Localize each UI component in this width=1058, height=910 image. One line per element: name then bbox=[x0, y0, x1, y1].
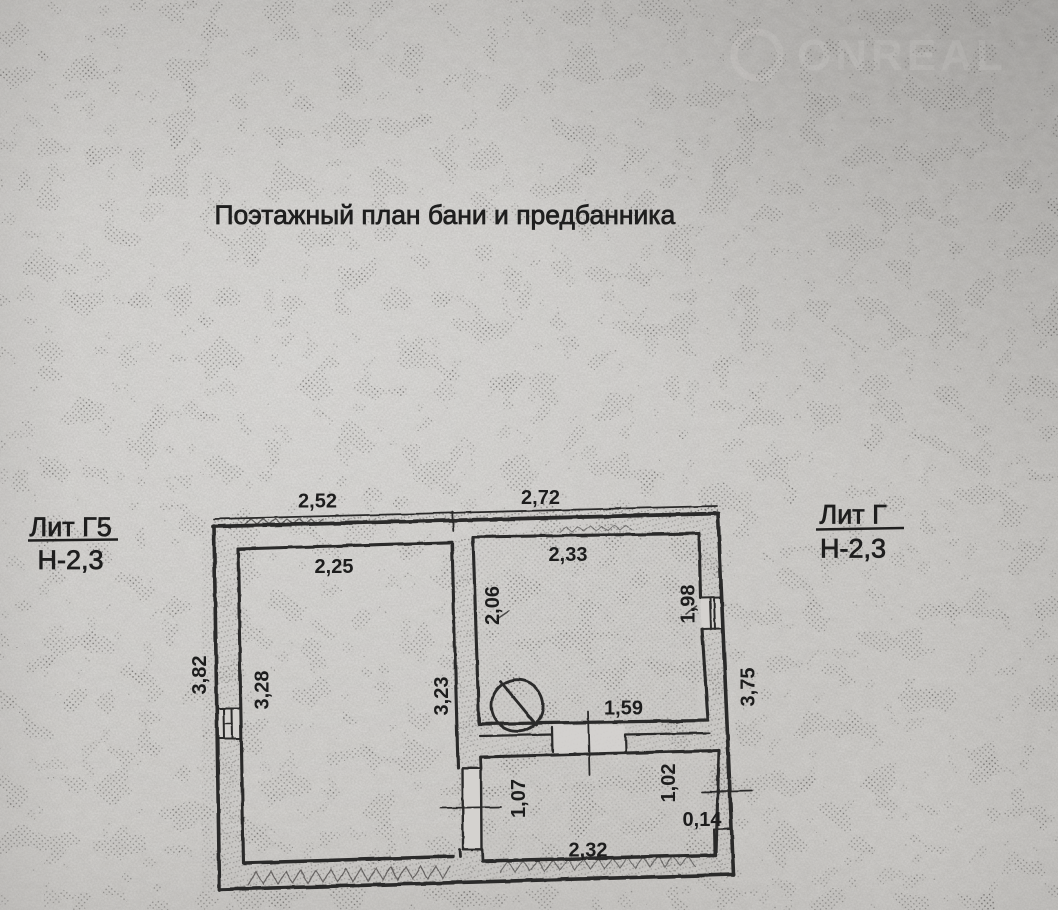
svg-text:2,06: 2,06 bbox=[482, 586, 504, 625]
svg-text:Лит Г: Лит Г bbox=[820, 500, 888, 530]
svg-text:3,75: 3,75 bbox=[738, 668, 760, 707]
svg-text:3,23: 3,23 bbox=[431, 677, 453, 716]
svg-text:1,59: 1,59 bbox=[604, 698, 643, 720]
svg-text:ONREAL: ONREAL bbox=[797, 31, 1007, 80]
svg-text:Поэтажный план бани и предбанн: Поэтажный план бани и предбанника bbox=[215, 200, 676, 230]
svg-text:1,02: 1,02 bbox=[658, 764, 680, 803]
svg-text:3,28: 3,28 bbox=[252, 671, 274, 710]
svg-text:Н-2,3: Н-2,3 bbox=[38, 545, 104, 575]
svg-text:1,98: 1,98 bbox=[678, 585, 700, 624]
svg-text:2,33: 2,33 bbox=[549, 544, 588, 566]
svg-text:2,72: 2,72 bbox=[521, 487, 560, 509]
svg-text:3,82: 3,82 bbox=[189, 656, 211, 695]
svg-text:0,14: 0,14 bbox=[683, 809, 723, 831]
svg-text:1,07: 1,07 bbox=[508, 779, 530, 818]
svg-text:2,32: 2,32 bbox=[569, 840, 608, 862]
svg-text:2,25: 2,25 bbox=[315, 556, 354, 578]
svg-text:Лит Г5: Лит Г5 bbox=[30, 512, 112, 542]
svg-text:Н-2,3: Н-2,3 bbox=[820, 534, 886, 564]
svg-text:2,52: 2,52 bbox=[298, 491, 337, 513]
